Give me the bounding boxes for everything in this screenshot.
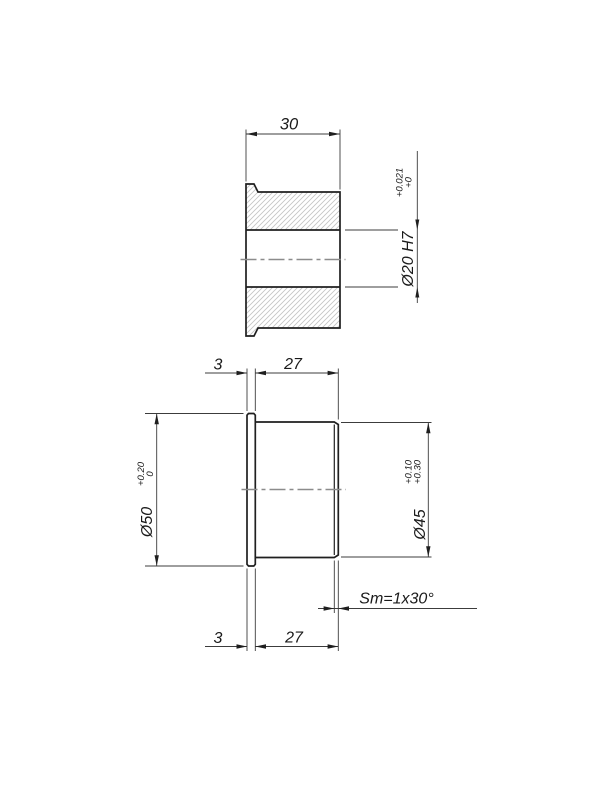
side-view: 3 27 +0.20 0 Ø50 +0.10 +0.30 Ø45 xyxy=(136,356,477,651)
dim-bore-diameter: +0.021 +0 Ø20 H7 xyxy=(345,151,419,303)
dim-bottom-lengths: 3 27 xyxy=(205,569,338,652)
arrow-left-icon xyxy=(246,132,257,136)
arrow-down-icon xyxy=(155,555,159,566)
flange-width-bottom-label: 3 xyxy=(214,630,223,647)
arrow-right-icon xyxy=(328,644,339,648)
overall-length-label: 30 xyxy=(280,116,299,134)
arrow-right-icon xyxy=(324,606,335,610)
bore-tolerance-lower: +0 xyxy=(404,176,415,188)
body-od-label: Ø45 xyxy=(412,509,429,540)
section-hatch-upper xyxy=(246,184,340,230)
arrow-down-icon xyxy=(415,220,419,231)
arrow-right-icon xyxy=(237,644,248,648)
flange-width-top-label: 3 xyxy=(214,357,223,374)
arrow-left-icon xyxy=(255,644,266,648)
flange-od-label: Ø50 xyxy=(139,507,156,538)
bore-diameter-label: Ø20 H7 xyxy=(400,230,417,287)
dim-top-lengths: 3 27 xyxy=(205,356,338,420)
arrow-right-icon xyxy=(328,371,339,375)
arrow-up-icon xyxy=(426,423,430,434)
arrow-right-icon xyxy=(237,371,248,375)
arrow-left-icon xyxy=(255,371,266,375)
dim-chamfer: Sm=1x30° xyxy=(318,561,477,652)
body-length-top-label: 27 xyxy=(283,356,303,373)
dim-body-od: +0.10 +0.30 Ø45 xyxy=(341,423,432,558)
body-od-tolerance-lower: +0.30 xyxy=(413,459,424,484)
flange-od-tolerance-lower: 0 xyxy=(145,471,156,477)
arrow-up-icon xyxy=(155,414,159,425)
dim-flange-od: +0.20 0 Ø50 xyxy=(136,414,244,567)
arrow-right-icon xyxy=(329,132,340,136)
arrow-left-icon xyxy=(338,606,349,610)
section-view: 30 +0.021 +0 Ø20 H7 xyxy=(241,116,420,337)
arrow-up-icon xyxy=(415,287,419,298)
drawing-sheet: 30 +0.021 +0 Ø20 H7 xyxy=(0,0,612,792)
arrow-down-icon xyxy=(426,546,430,557)
dim-overall-length: 30 xyxy=(246,116,340,190)
body-length-bottom-label: 27 xyxy=(284,630,304,647)
chamfer-note-label: Sm=1x30° xyxy=(359,591,434,608)
technical-drawing: 30 +0.021 +0 Ø20 H7 xyxy=(0,0,612,792)
